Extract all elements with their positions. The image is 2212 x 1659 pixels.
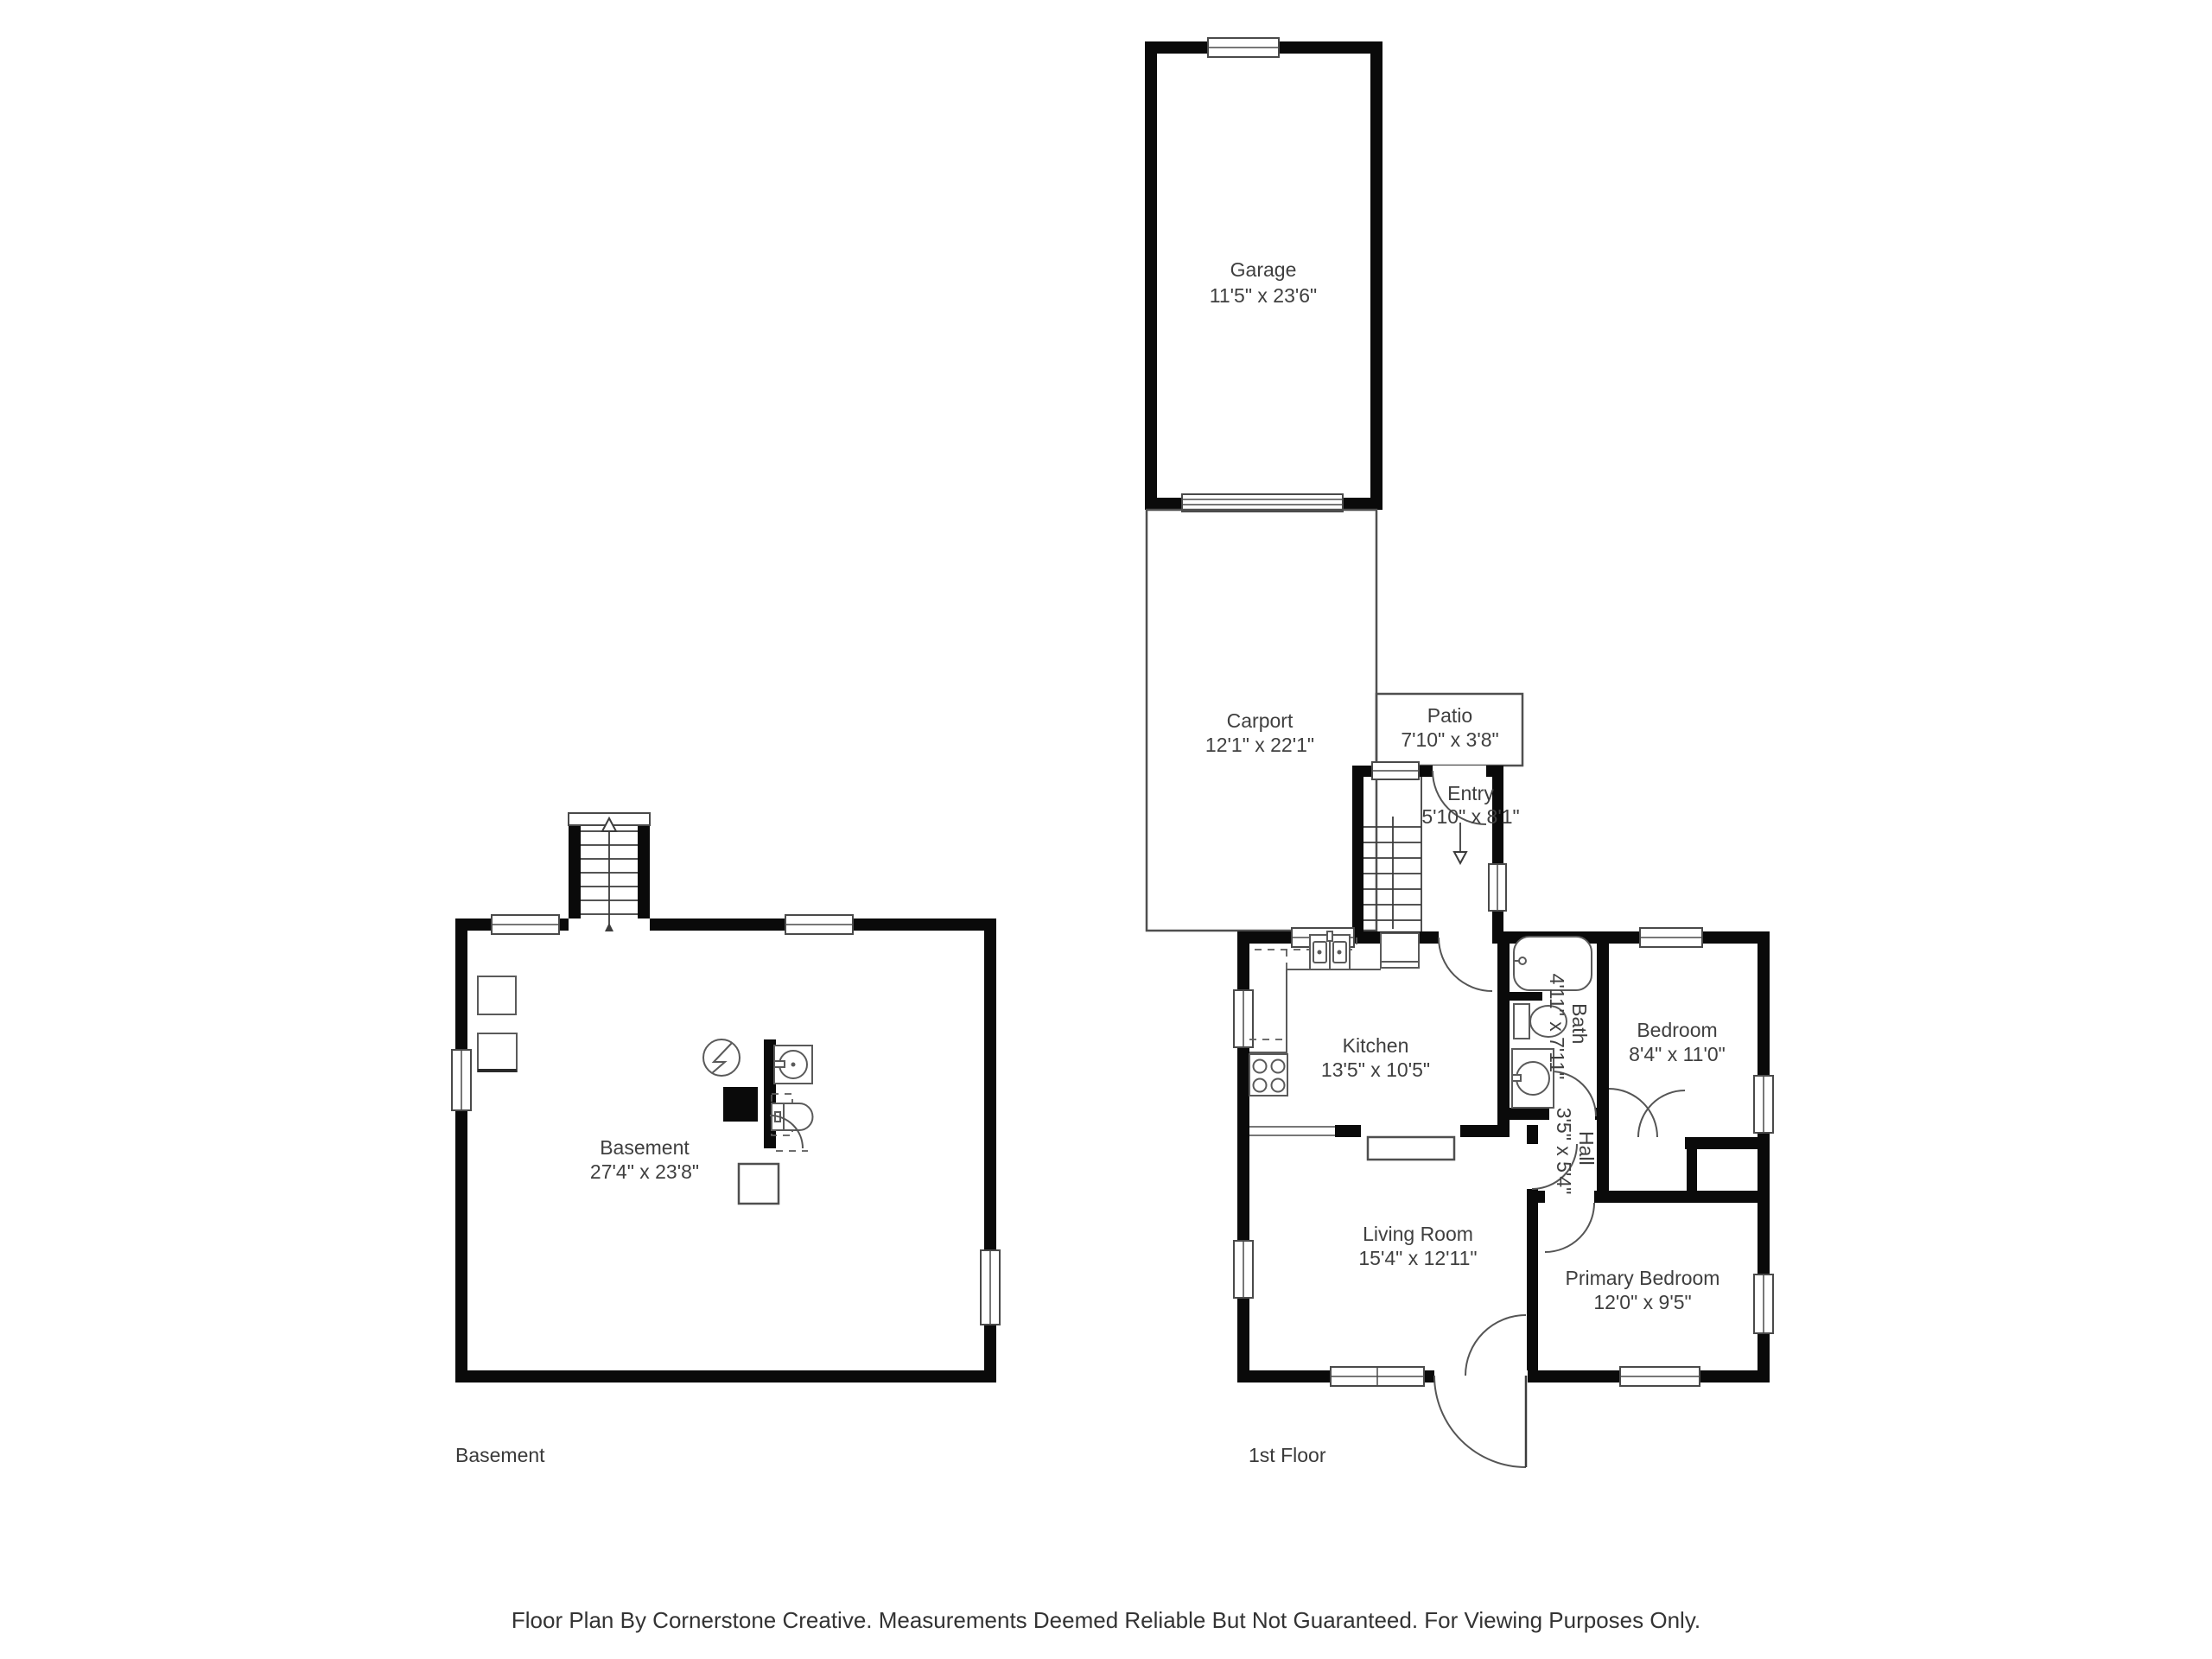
kitchen-dims: 13'5" x 10'5" — [1321, 1058, 1430, 1081]
basement-window-top-2 — [785, 915, 853, 934]
basement-window-right — [981, 1250, 1000, 1325]
carport-plan: Carport 12'1" x 22'1" — [1147, 510, 1376, 931]
patio-dims: 7'10" x 3'8" — [1401, 728, 1498, 751]
living-room-name: Living Room — [1363, 1223, 1473, 1245]
basement-plan: Basement 27'4" x 23'8" — [452, 813, 1000, 1382]
floor-plan-page: Garage 11'5" x 23'6" Carport 12'1" x 22'… — [0, 0, 2212, 1659]
basement-window-top-1 — [492, 915, 559, 934]
support-post — [739, 1164, 779, 1204]
basement-floor-label: Basement — [455, 1444, 545, 1466]
primary-bedroom-name: Primary Bedroom — [1566, 1267, 1720, 1289]
entry-dims: 5'10" x 8'1" — [1421, 805, 1519, 828]
entry-staircase — [1363, 777, 1421, 931]
floor-plan-drawing: Garage 11'5" x 23'6" Carport 12'1" x 22'… — [0, 0, 2212, 1659]
svg-text:Hall 3'5" x 5'4": Hall 3'5" x 5'4" — [1553, 1108, 1598, 1195]
garage-dims: 11'5" x 23'6" — [1210, 284, 1317, 307]
entry-name: Entry — [1447, 782, 1494, 804]
kitchen-entry-door-arc — [1439, 938, 1492, 991]
primary-door-arc — [1545, 1203, 1594, 1252]
stove — [1249, 1054, 1287, 1096]
first-floor-label: 1st Floor — [1249, 1444, 1326, 1466]
first-floor-plan: Kitchen 13'5" x 10'5" Bedroom 8'4" x 11'… — [1234, 928, 1773, 1467]
patio-name: Patio — [1427, 704, 1472, 727]
kitchen-name: Kitchen — [1343, 1034, 1409, 1057]
bath-dims: 4'11" x 7'11" — [1546, 974, 1568, 1080]
living-window-left — [1234, 1241, 1253, 1298]
appliance-box-2 — [478, 1033, 517, 1071]
basement-toilet — [772, 1094, 813, 1135]
electrical-panel-icon — [703, 1039, 740, 1076]
bedroom-door-arc — [1609, 1089, 1657, 1137]
svg-text:Bath 4'11" x 7'11": Bath 4'11" x 7'11" — [1546, 974, 1591, 1080]
kitchen-sink — [1310, 931, 1350, 969]
footer-disclaimer: Floor Plan By Cornerstone Creative. Meas… — [512, 1607, 1700, 1633]
exterior-door — [1434, 1315, 1526, 1467]
living-room-dims: 15'4" x 12'11" — [1358, 1247, 1477, 1269]
primary-window-right — [1754, 1274, 1773, 1333]
appliance-box-1 — [478, 976, 516, 1014]
patio-plan: Patio 7'10" x 3'8" — [1376, 694, 1522, 766]
hall-name: Hall — [1575, 1131, 1598, 1166]
basement-staircase — [581, 818, 638, 931]
primary-window-bottom — [1620, 1367, 1700, 1386]
primary-bedroom-dims: 12'0" x 9'5" — [1593, 1291, 1691, 1313]
chimney — [723, 1087, 758, 1122]
closet-door-arc — [1638, 1090, 1685, 1137]
stairs-down-arrow — [1454, 823, 1466, 863]
hall-dims: 3'5" x 5'4" — [1553, 1108, 1575, 1195]
basement-sink — [774, 1046, 812, 1084]
garage-name: Garage — [1230, 258, 1297, 281]
basement-dims: 27'4" x 23'8" — [590, 1160, 699, 1183]
garage-plan: Garage 11'5" x 23'6" — [1145, 38, 1382, 512]
garage-window — [1208, 38, 1279, 57]
bedroom-dims: 8'4" x 11'0" — [1629, 1043, 1726, 1065]
carport-dims: 12'1" x 22'1" — [1205, 734, 1314, 756]
living-window-bottom — [1331, 1367, 1424, 1386]
bath-name: Bath — [1568, 1003, 1591, 1044]
bedroom-window-right — [1754, 1076, 1773, 1133]
entry-window-right — [1489, 864, 1506, 911]
bedroom-name: Bedroom — [1637, 1019, 1717, 1041]
bath-partition-stub — [1510, 992, 1542, 1001]
carport-name: Carport — [1227, 709, 1294, 732]
entry-window-top — [1372, 762, 1419, 779]
basement-window-left — [452, 1050, 471, 1110]
bedroom-window-top — [1640, 928, 1702, 947]
basement-name: Basement — [600, 1136, 690, 1159]
